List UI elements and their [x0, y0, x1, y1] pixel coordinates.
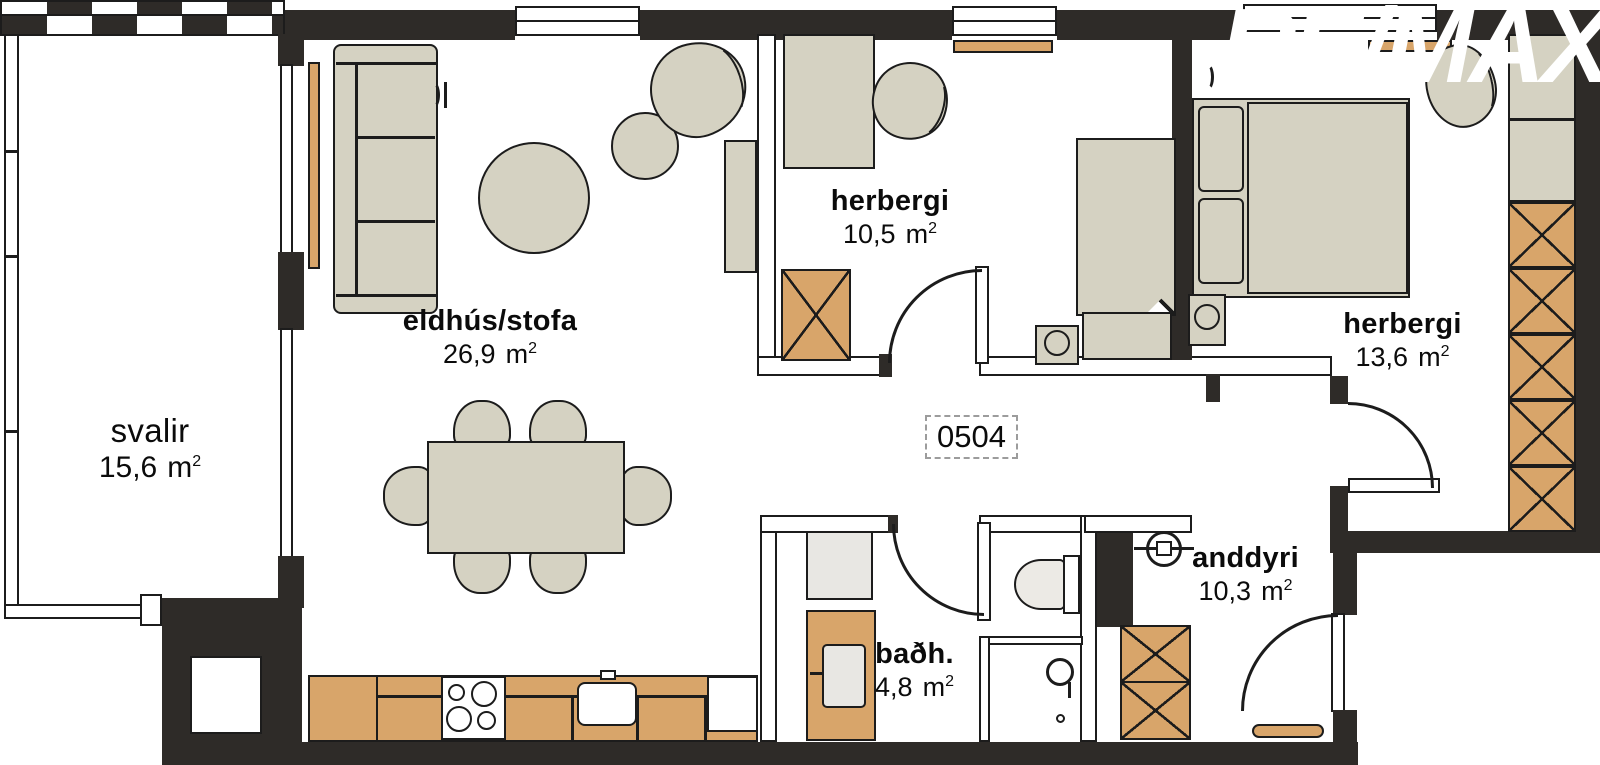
wardrobe-bedroom2-cell — [1508, 202, 1576, 268]
windowsill-bedroom1 — [953, 40, 1053, 53]
balcony-window-lower — [280, 328, 293, 560]
unit-exponent: 2 — [1284, 577, 1293, 594]
nightstand-lamp — [1194, 304, 1220, 330]
shower-pipe — [1068, 682, 1071, 698]
sofa-armrest-line — [336, 294, 436, 297]
balcony-door-leaf — [308, 62, 320, 269]
unit-base: m — [167, 451, 192, 484]
dining-table — [427, 441, 625, 554]
door-entry-swing-arc — [1241, 614, 1338, 711]
pillow — [1198, 198, 1244, 284]
unit-base: m — [1261, 576, 1284, 606]
room-area: 10,5m2 — [785, 219, 995, 250]
dining-chair — [618, 466, 672, 526]
room-name: anddyri — [1148, 542, 1343, 575]
unit-exponent: 2 — [528, 340, 537, 357]
entry-wardrobe-cell — [1120, 681, 1191, 740]
balcony-railing-bottom-row — [0, 14, 285, 36]
shower-glass-horizontal — [979, 636, 1083, 645]
unit-base: m — [923, 672, 946, 702]
sofa-cushion-line — [357, 220, 435, 223]
unit-exponent: 2 — [945, 673, 954, 690]
unit-base: m — [1418, 342, 1441, 372]
door-bedroom1-swing-arc — [888, 269, 982, 363]
area-value: 13,6 — [1356, 342, 1409, 372]
door-bath-swing-arc — [892, 524, 984, 616]
room-area: 15,6m2 — [40, 451, 260, 485]
tv-stand — [724, 140, 757, 273]
apartment-number-box: 0504 — [925, 415, 1018, 459]
wardrobe-bedroom1 — [781, 269, 851, 361]
kitchen-counter-edge — [378, 695, 756, 698]
area-unit: m2 — [167, 451, 201, 484]
room-label-living: eldhús/stofa 26,9m2 — [375, 305, 605, 370]
room-label-bedroom1: herbergi 10,5m2 — [785, 185, 995, 250]
dishwasher — [707, 676, 758, 732]
sofa-backrest-line — [355, 64, 358, 296]
pillow — [1198, 106, 1244, 192]
wardrobe-bedroom2-cell — [1508, 400, 1576, 466]
room-label-bedroom2: herbergi 13,6m2 — [1295, 308, 1510, 373]
balcony-glass-left — [4, 34, 19, 612]
arc-curve — [892, 524, 984, 616]
apartment-number: 0504 — [937, 419, 1006, 455]
door-bedroom2-swing-arc — [1348, 402, 1434, 488]
unit-exponent: 2 — [928, 220, 937, 237]
wardrobe-bedroom2-cell — [1508, 268, 1576, 334]
wall-entry-right-bottom — [1333, 710, 1357, 745]
bath-sink-faucet — [810, 672, 824, 675]
balcony-glass-tick — [4, 430, 19, 433]
floorplan-canvas: svalir 15,6m2 eldhús/stofa 26,9m2 herber… — [0, 0, 1600, 765]
kitchen-counter — [376, 675, 758, 742]
unit-exponent: 2 — [192, 453, 201, 470]
coffee-table — [478, 142, 590, 254]
bed-single — [1076, 138, 1176, 316]
remax-logo: RE/MAX — [1128, 0, 1600, 107]
balcony-glass-bottom — [4, 604, 146, 619]
window-bedroom1 — [952, 6, 1057, 36]
exterior-niche — [190, 656, 262, 734]
stove-burner — [471, 681, 497, 707]
room-name: eldhús/stofa — [375, 305, 605, 338]
area-unit: m2 — [923, 672, 954, 702]
wall-bath-left — [760, 515, 777, 742]
room-area: 10,3m2 — [1148, 576, 1343, 607]
room-name: svalir — [40, 412, 260, 450]
unit-exponent: 2 — [1441, 343, 1450, 360]
wall-bath-top-right — [979, 515, 1082, 533]
floor-drain — [1056, 714, 1065, 723]
area-value: 10,3 — [1199, 576, 1252, 606]
vent-mark-living-line — [444, 82, 447, 108]
sofa — [333, 44, 438, 314]
doorpost-bedroom2-top — [1330, 376, 1348, 404]
armchair-seat-line — [688, 39, 752, 125]
area-unit: m2 — [1261, 576, 1292, 606]
shower-glass-vertical — [979, 636, 990, 742]
arc-curve — [888, 269, 982, 363]
area-value: 15,6 — [99, 451, 157, 484]
sofa-cushion-line — [357, 136, 435, 139]
balcony-glass-tick — [4, 150, 19, 153]
entry-doormat — [1252, 724, 1324, 738]
room-area: 4,8m2 — [852, 672, 977, 703]
wall-entry-top — [1084, 515, 1192, 533]
unit-base: m — [506, 339, 529, 369]
bed-double-duvet — [1247, 102, 1408, 294]
wall-living-bedroom1 — [757, 34, 776, 360]
kitchen-sink — [577, 682, 637, 726]
nightstand-lamp — [1044, 330, 1070, 356]
sofa-armrest-line — [336, 62, 436, 65]
stove-burner — [477, 711, 496, 730]
balcony-window-upper — [280, 64, 293, 256]
entry-wardrobe-cell — [1120, 625, 1191, 683]
room-name: herbergi — [785, 185, 995, 218]
window-living — [515, 6, 640, 36]
washing-machine — [806, 531, 873, 600]
desk-bedroom1 — [783, 34, 875, 169]
balcony-corner-post — [140, 594, 162, 626]
desk-chair-bedroom1 — [862, 52, 958, 150]
room-name: baðh. — [852, 638, 977, 671]
wall-bedroom2-bottom — [1330, 531, 1600, 553]
room-label-entry: anddyri 10,3m2 — [1148, 542, 1343, 607]
stove-burner — [448, 684, 465, 701]
doorpost-bedroom2-bottom — [1330, 486, 1348, 533]
room-label-balcony: svalir 15,6m2 — [40, 412, 260, 485]
doorjamb-corridor — [1206, 374, 1220, 402]
room-area: 26,9m2 — [375, 339, 605, 370]
area-unit: m2 — [906, 219, 937, 249]
room-area: 13,6m2 — [1295, 342, 1510, 373]
wardrobe-shelf-divider — [1510, 118, 1574, 121]
wall-left-post-mid — [278, 252, 304, 330]
balcony-glass-tick — [4, 255, 19, 258]
wall-top-a — [285, 10, 515, 40]
area-unit: m2 — [1418, 342, 1449, 372]
unit-base: m — [906, 219, 929, 249]
wardrobe-bedroom2-cell — [1508, 334, 1576, 400]
toilet-tank — [1063, 555, 1080, 614]
stove-burner — [446, 706, 472, 732]
room-name: herbergi — [1295, 308, 1510, 341]
kitchen-cabinet-divider — [571, 698, 574, 740]
shaft-entry — [1097, 533, 1133, 627]
room-label-bath: baðh. 4,8m2 — [852, 638, 977, 703]
arc-curve — [1348, 402, 1434, 488]
vent-mark-living — [428, 82, 440, 108]
area-value: 26,9 — [443, 339, 496, 369]
wall-bath-right — [1080, 515, 1097, 742]
bed-single-foot — [1082, 312, 1172, 360]
area-value: 4,8 — [875, 672, 913, 702]
wardrobe-bedroom2-cell — [1508, 466, 1576, 532]
wall-bottom-exterior — [162, 742, 1358, 765]
toilet-bowl — [1014, 559, 1068, 610]
chair-seat-line — [902, 72, 953, 141]
area-unit: m2 — [506, 339, 537, 369]
arc-curve — [1241, 614, 1338, 711]
area-value: 10,5 — [843, 219, 896, 249]
kitchen-cabinet-left — [308, 675, 378, 742]
kitchen-sink-faucet — [600, 670, 616, 680]
